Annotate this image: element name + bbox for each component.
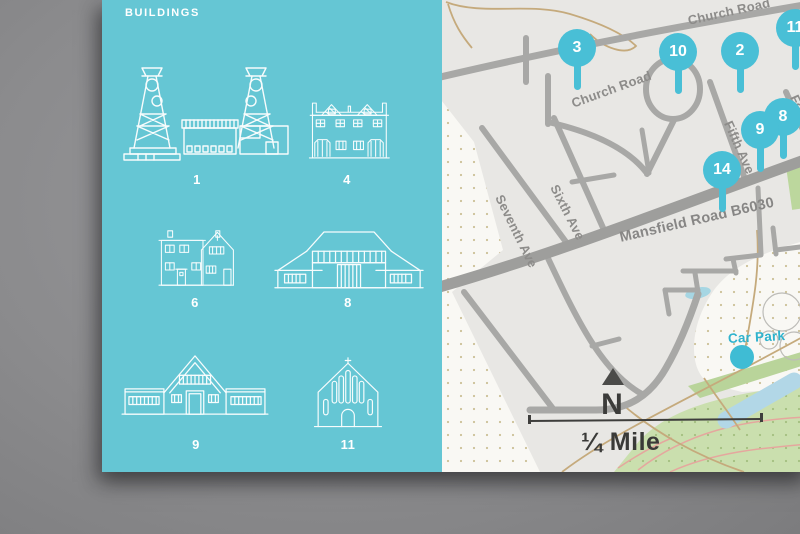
pin-number: 14 [713,161,731,179]
building-1-number: 1 [162,172,232,187]
map-leaflet: BUILDINGS [102,0,800,472]
map-pin-tail [675,67,682,94]
building-8-number: 8 [313,295,383,310]
map-pin: 9 [741,111,779,149]
map-pin: 14 [703,151,741,189]
scale-bar-tick-left [528,415,531,424]
map-pin-tail [719,185,726,212]
north-label: N [598,388,626,422]
pin-number: 2 [736,42,745,60]
photo-backdrop: BUILDINGS [0,0,800,534]
map-pin-tail [737,66,744,93]
pin-number: 9 [756,121,765,139]
map-pin-tail [792,43,799,70]
buildings-panel: BUILDINGS [102,0,442,472]
pin-number: 10 [669,43,687,61]
building-6-number: 6 [160,295,230,310]
street-map: Church Road Church Road Seventh Ave Sixt… [442,0,800,472]
building-9-number: 9 [161,437,231,452]
pin-number: 8 [779,108,788,126]
panel-title: BUILDINGS [125,7,200,19]
pin-number: 3 [573,39,582,57]
map-pin-tail [757,145,764,172]
car-park-dot [730,345,754,369]
pin-number: 11 [787,19,800,37]
map-pin-tail [574,63,581,90]
map-pin: 10 [659,33,697,71]
map-pin-tail [780,132,787,159]
building-11-church-icon [308,356,388,432]
building-8-hall-icon [274,220,424,292]
building-4-number: 4 [312,172,382,187]
map-pin: 2 [721,32,759,70]
map-pin: 3 [558,29,596,67]
building-11-number: 11 [313,437,383,452]
scale-label: ¼ Mile [581,428,660,457]
north-arrow-icon [602,368,624,385]
building-4-terrace-icon [294,94,404,164]
building-9-pavilion-icon [120,352,270,420]
building-1-colliery-icon [120,60,292,164]
building-6-houses-icon [144,226,246,290]
label-car-park: Car Park [728,328,786,346]
scale-bar-tick-right [760,413,763,422]
